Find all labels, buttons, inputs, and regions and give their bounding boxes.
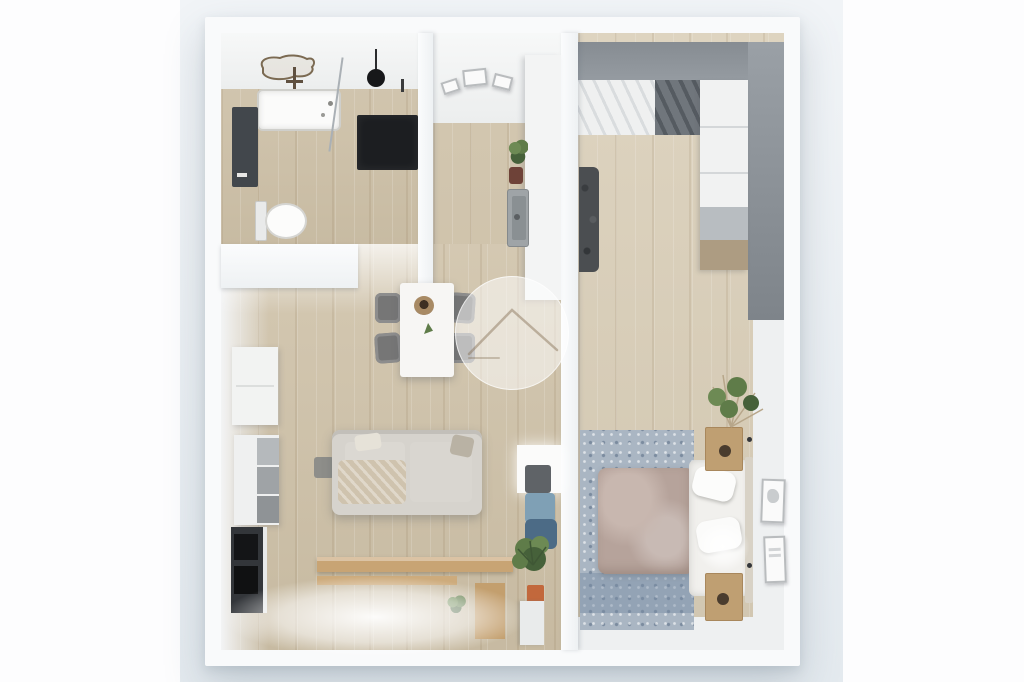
frame-art — [769, 554, 781, 557]
shelf-box — [257, 496, 279, 523]
wardrobe-side-unit — [700, 80, 748, 270]
sofa — [332, 430, 482, 515]
desk-shelf — [317, 576, 457, 585]
towel-radiator — [232, 107, 258, 187]
tv-screen — [234, 534, 258, 560]
bathtub — [257, 89, 341, 131]
counter-plant — [508, 137, 528, 165]
bedroom-gray-column — [748, 42, 784, 320]
shelf-unit — [234, 435, 279, 525]
shower — [357, 115, 418, 170]
bathroom-ceiling-lamp — [367, 69, 385, 87]
desk-plant — [445, 595, 467, 613]
wall-hook — [401, 79, 404, 92]
wooden-desk — [317, 557, 513, 572]
dining-chair — [375, 293, 401, 323]
wardrobe-wood-drawer — [700, 240, 748, 270]
tv-screen — [234, 566, 258, 594]
fruit-bowl — [414, 296, 434, 315]
toilet — [265, 203, 307, 239]
desk-leg — [475, 583, 505, 639]
kitchen-sink — [507, 189, 529, 247]
side-table — [314, 457, 334, 478]
cabinet-line — [236, 385, 274, 387]
bathroom-back-wall-face — [221, 33, 418, 89]
towel-bar — [286, 80, 303, 83]
counter-jar — [509, 167, 523, 184]
frame-art — [769, 548, 781, 551]
potted-plant — [508, 531, 558, 587]
wall-frame — [763, 536, 787, 584]
wardrobe-divider — [700, 126, 748, 128]
wardrobe-gray-drawer — [700, 207, 748, 240]
white-planter — [520, 601, 544, 645]
rug-band — [580, 573, 694, 613]
shelf-box — [257, 438, 279, 465]
nightstand-item — [717, 593, 729, 605]
wall-sconce — [747, 437, 752, 442]
table-plant-sprig — [424, 323, 433, 334]
frame-art — [767, 489, 779, 503]
tv-unit — [231, 527, 267, 613]
wall-sconce — [747, 563, 752, 568]
wardrobe-divider — [700, 172, 748, 174]
wall-frame — [760, 479, 786, 524]
bathroom-bottom-wall — [221, 244, 358, 288]
headboard — [745, 457, 753, 603]
storage-cabinet — [232, 347, 278, 425]
tub-drain — [328, 101, 333, 106]
bathroom-right-wall — [418, 33, 433, 288]
floor-plan-screenshot — [0, 0, 1024, 682]
tv-unit-edge — [263, 527, 267, 613]
kitchen-counter — [525, 55, 561, 300]
hanging-clothes — [579, 167, 599, 272]
lamp-stem — [375, 49, 377, 71]
sofa-pillow — [449, 434, 475, 458]
shelf-box — [257, 467, 279, 494]
sink-faucet — [514, 214, 520, 220]
gray-stool — [525, 465, 551, 493]
sofa-blanket — [338, 460, 406, 504]
leaning-frame — [462, 68, 488, 87]
nightstand — [705, 573, 743, 621]
radiator-label — [237, 173, 247, 177]
dining-chair — [374, 332, 402, 364]
watermark-roof-icon — [455, 276, 569, 390]
bedroom-plant — [693, 369, 769, 439]
bed-duvet — [598, 468, 694, 574]
nightstand-item — [719, 445, 731, 457]
dining-table — [400, 283, 454, 377]
house-logo-watermark — [455, 276, 569, 390]
tub-control — [321, 113, 325, 117]
